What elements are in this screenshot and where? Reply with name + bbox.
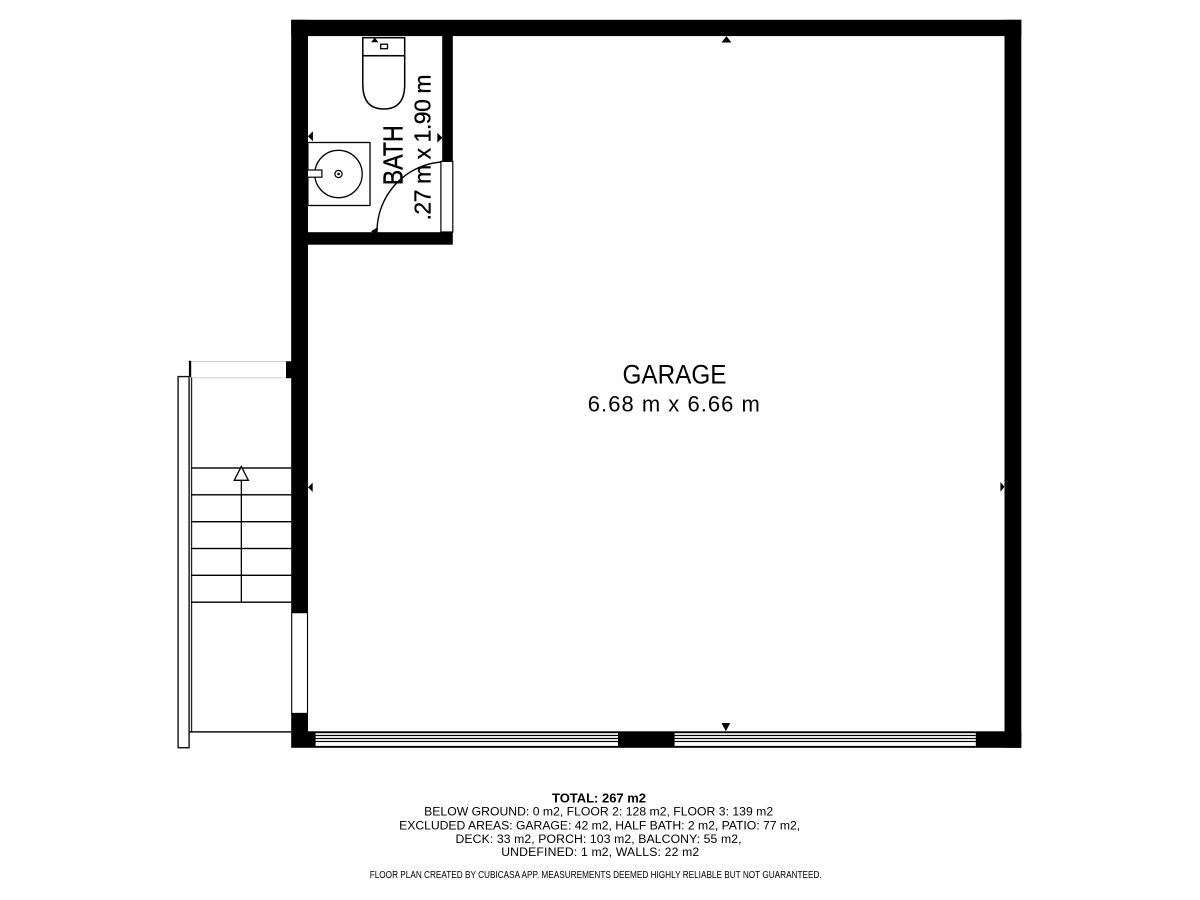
svg-text:BATH: BATH bbox=[377, 125, 408, 185]
svg-text:DECK: 33 m2, PORCH: 103 m2, BA: DECK: 33 m2, PORCH: 103 m2, BALCONY: 55 … bbox=[456, 832, 742, 846]
svg-text:BELOW GROUND: 0 m2, FLOOR 2: 1: BELOW GROUND: 0 m2, FLOOR 2: 128 m2, FLO… bbox=[424, 804, 773, 818]
svg-text:UNDEFINED: 1 m2, WALLS: 22 m2: UNDEFINED: 1 m2, WALLS: 22 m2 bbox=[501, 845, 699, 859]
svg-text:FLOOR PLAN CREATED BY CUBICASA: FLOOR PLAN CREATED BY CUBICASA APP. MEAS… bbox=[370, 870, 822, 881]
svg-text:GARAGE: GARAGE bbox=[623, 360, 727, 390]
svg-text:6.68 m x 6.66 m: 6.68 m x 6.66 m bbox=[588, 392, 760, 417]
svg-text:EXCLUDED AREAS: GARAGE: 42 m2,: EXCLUDED AREAS: GARAGE: 42 m2, HALF BATH… bbox=[399, 818, 800, 832]
svg-text:.27 m x 1.90 m: .27 m x 1.90 m bbox=[409, 75, 435, 221]
svg-text:TOTAL: 267 m2: TOTAL: 267 m2 bbox=[552, 790, 646, 805]
